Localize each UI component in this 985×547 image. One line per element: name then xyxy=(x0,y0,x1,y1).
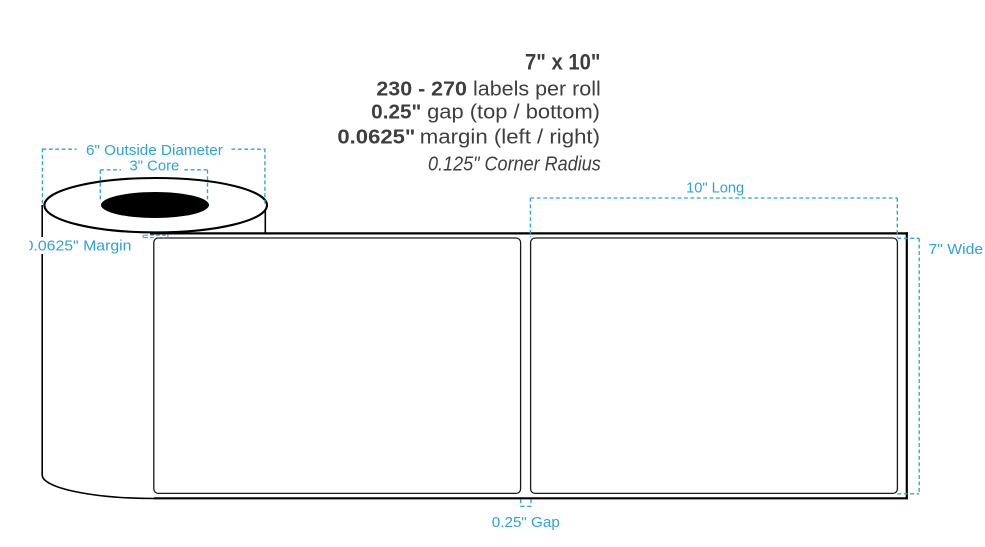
svg-text:0.25": 0.25" xyxy=(371,102,421,124)
svg-text:7" x 10": 7" x 10" xyxy=(525,50,601,75)
svg-text:10" Long: 10" Long xyxy=(686,179,744,196)
svg-text:gap (top / bottom): gap (top / bottom) xyxy=(427,102,600,124)
svg-text:0.0625": 0.0625" xyxy=(337,126,415,148)
svg-text:margin (left / right): margin (left / right) xyxy=(420,126,600,148)
svg-text:7" Wide: 7" Wide xyxy=(929,241,984,258)
svg-text:0.125" Corner Radius: 0.125" Corner Radius xyxy=(428,154,601,176)
svg-text:0.0625" Margin: 0.0625" Margin xyxy=(25,237,132,254)
svg-text:230 - 270: 230 - 270 xyxy=(376,79,467,101)
svg-text:labels per roll: labels per roll xyxy=(473,79,601,101)
svg-text:3" Core: 3" Core xyxy=(130,158,180,175)
svg-text:0.25" Gap: 0.25" Gap xyxy=(492,514,560,531)
